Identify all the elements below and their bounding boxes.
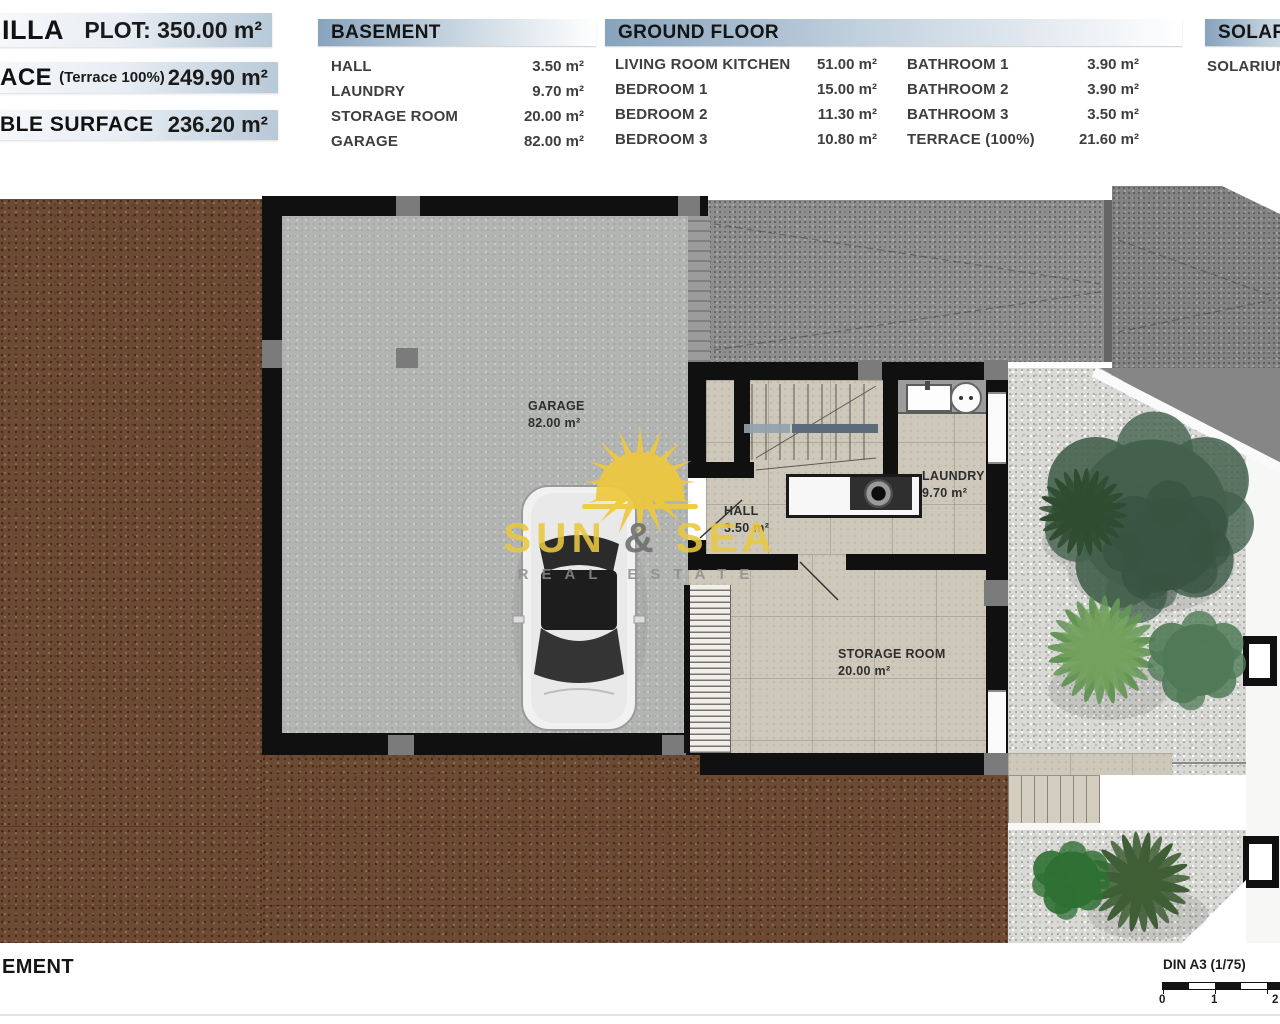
laundry-room-label: LAUNDRY 9.70 m² — [922, 468, 985, 501]
room-name: GARAGE — [528, 398, 585, 415]
sheet-scale-label: DIN A3 (1/75) — [1163, 957, 1246, 972]
storage-room-label: STORAGE ROOM 20.00 m² — [838, 646, 946, 679]
ramp-slope-lines — [714, 224, 1272, 350]
watermark-word2: SEA — [676, 514, 777, 561]
floor-plan-sheet: ILLA PLOT: 350.00 m² ACE (Terrace 100%) … — [0, 0, 1280, 1024]
room-area: 82.00 m² — [528, 415, 585, 432]
footer-divider — [0, 1014, 1280, 1016]
scale-bar — [1162, 982, 1280, 990]
watermark-subtitle: REAL ESTATE — [500, 566, 780, 583]
watermark-ampersand: & — [623, 514, 658, 561]
watermark-brand: SUN & SEA — [500, 514, 780, 562]
room-area: 20.00 m² — [838, 663, 946, 680]
room-name: LAUNDRY — [922, 468, 985, 485]
corner-cut — [1222, 186, 1280, 214]
scale-tick-1: 1 — [1211, 994, 1217, 1006]
plan-title: EMENT — [2, 956, 74, 979]
room-name: STORAGE ROOM — [838, 646, 946, 663]
stair-glass-strip — [744, 424, 790, 433]
scale-tick-0: 0 — [1159, 994, 1165, 1006]
stair-glass-strip — [792, 424, 878, 433]
watermark-word1: SUN — [503, 514, 607, 561]
room-area: 9.70 m² — [922, 485, 985, 502]
plan-graphics — [0, 0, 1280, 1024]
scale-tick-2: 2 — [1272, 994, 1278, 1006]
scale-tickmark — [1267, 990, 1268, 994]
garage-room-label: GARAGE 82.00 m² — [528, 398, 585, 431]
